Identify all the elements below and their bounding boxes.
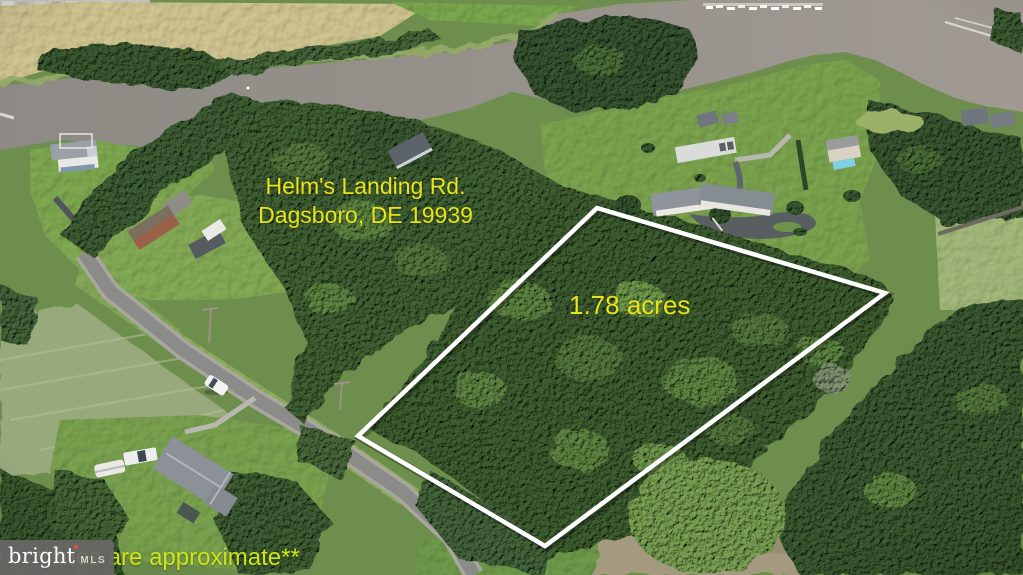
- address-overlay: Helm's Landing Rd. Dagsboro, DE 19939: [258, 172, 473, 230]
- brand-text: bright: [8, 544, 75, 568]
- lot-size-overlay: 1.78 acres: [569, 290, 690, 321]
- mls-text: MLS: [80, 555, 106, 566]
- brightmls-logo: bright: [8, 546, 75, 567]
- aerial-photo: Helm's Landing Rd. Dagsboro, DE 19939 1.…: [0, 0, 1023, 575]
- address-line1: Helm's Landing Rd.: [258, 172, 473, 201]
- brightmls-watermark: bright MLS: [0, 540, 114, 575]
- aerial-terrain: [0, 0, 1023, 575]
- vignette: [0, 0, 1023, 575]
- address-line2: Dagsboro, DE 19939: [258, 201, 473, 230]
- brand-accent-dot-icon: [74, 545, 78, 549]
